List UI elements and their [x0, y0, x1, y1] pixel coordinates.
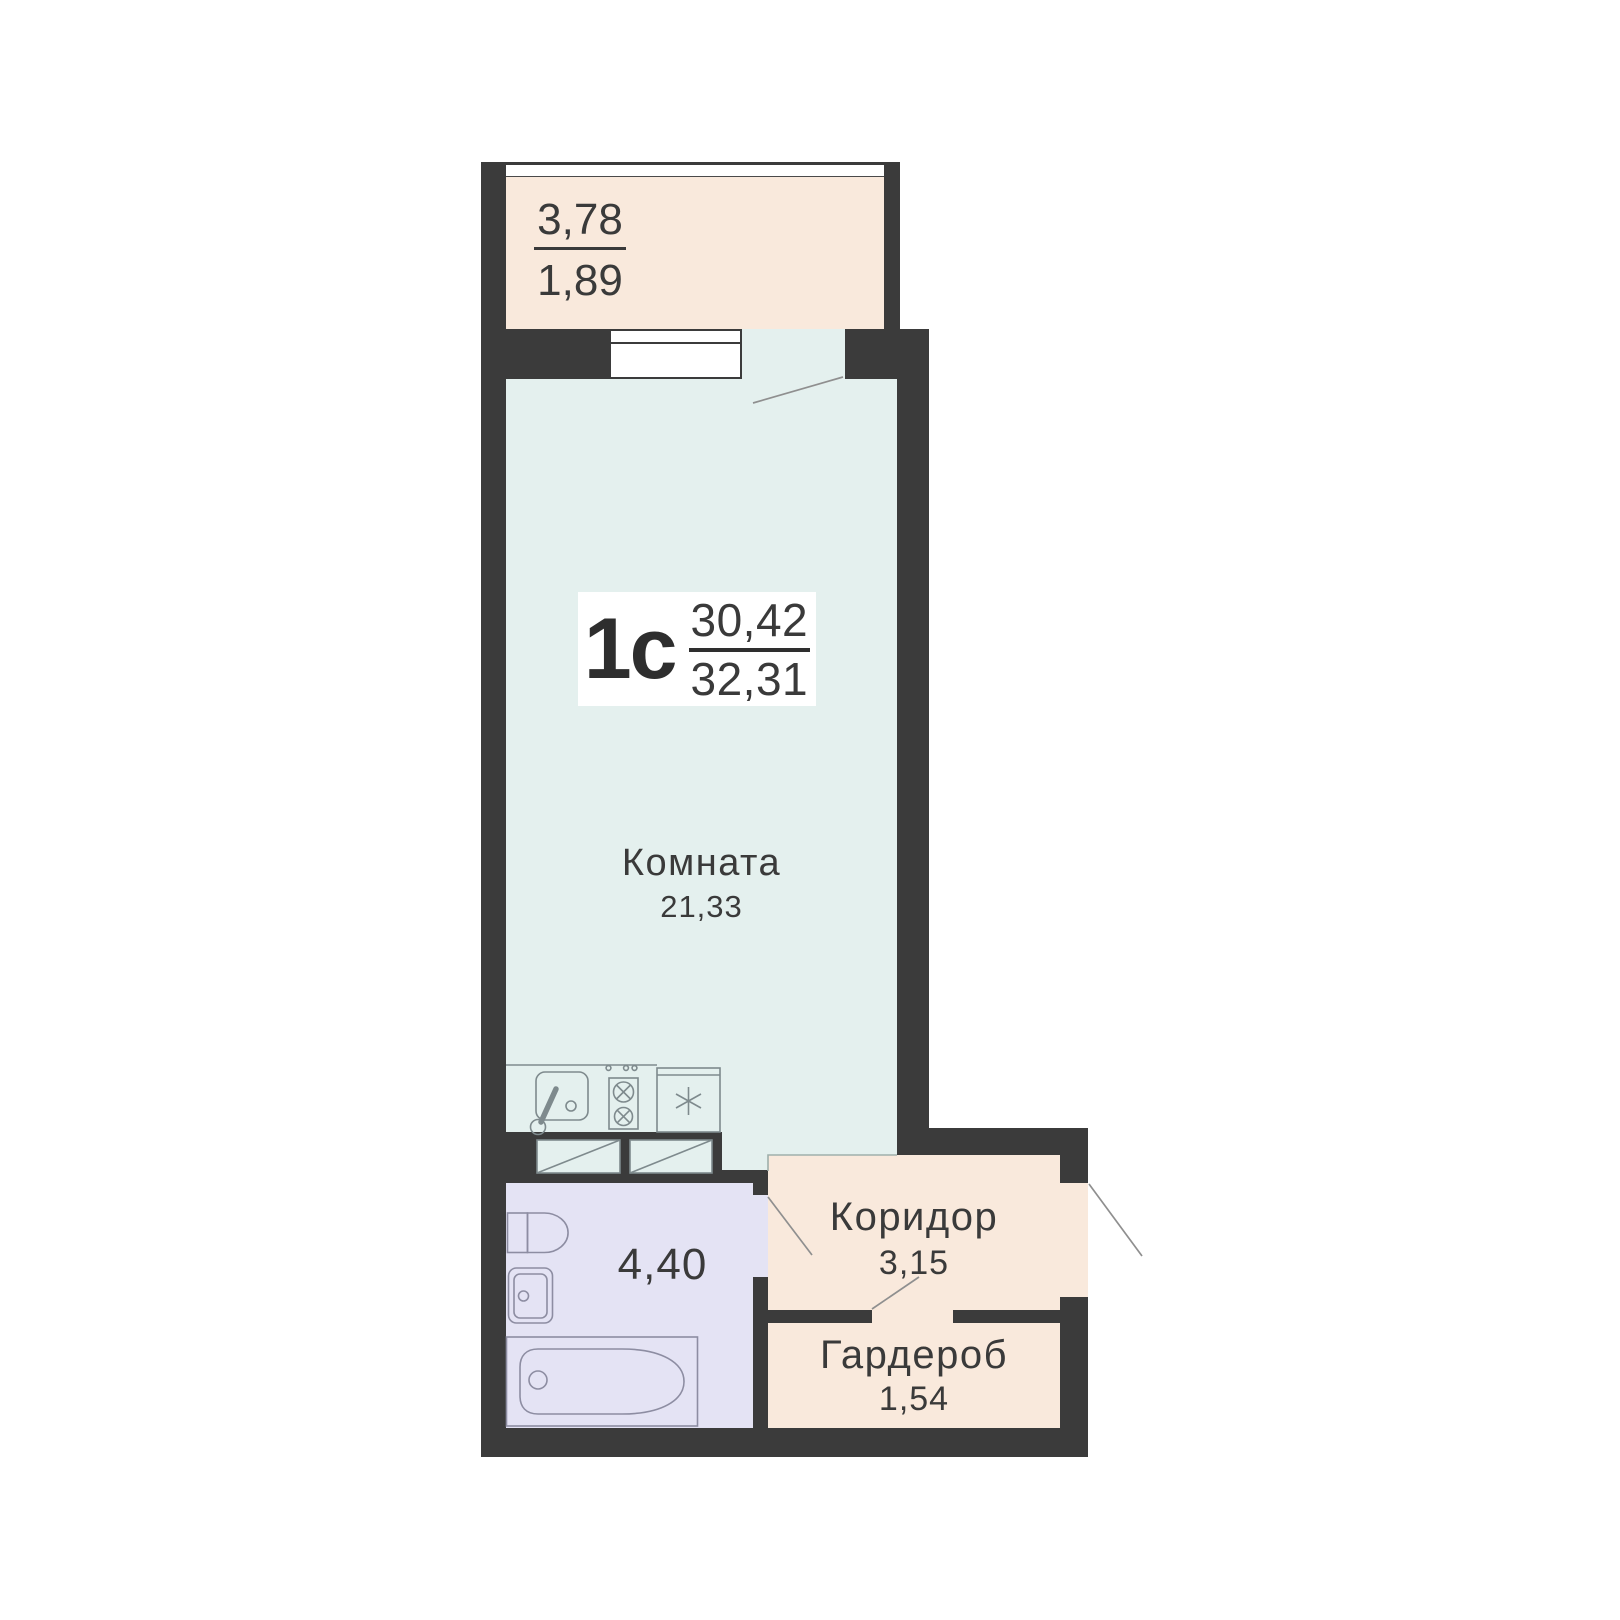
balcony-area-reduced: 1,89: [524, 257, 636, 305]
living-room-label: Комната 21,33: [506, 843, 897, 924]
corridor-area: 3,15: [768, 1245, 1060, 1282]
floor-plan: 3,78 1,89 1с 30,42 32,31 Комната 21,33 4…: [0, 0, 1620, 1620]
unit-total-area: 32,31: [689, 652, 811, 702]
closet-icon: [537, 1140, 712, 1173]
balcony-area-label: 3,78 1,89: [524, 196, 636, 304]
room-corridor-boundary-line: [768, 1155, 897, 1171]
unit-info-box: 1с 30,42 32,31: [578, 592, 816, 706]
toilet-icon: [508, 1213, 569, 1253]
kitchen-sink-icon: [531, 1072, 589, 1135]
unit-living-area: 30,42: [689, 597, 811, 652]
corridor-label: Коридор 3,15: [768, 1196, 1060, 1282]
wardrobe-label: Гардероб 1,54: [768, 1334, 1060, 1418]
living-room-name: Комната: [506, 843, 897, 884]
unit-area-fraction: 30,42 32,31: [689, 597, 811, 702]
corridor-name: Коридор: [768, 1196, 1060, 1239]
wardrobe-name: Гардероб: [768, 1334, 1060, 1377]
washbasin-icon: [509, 1268, 553, 1323]
entrance-door-swing: [1089, 1184, 1142, 1256]
balcony-area-full: 3,78: [534, 196, 626, 250]
stove-icon: [606, 1066, 638, 1129]
fridge-icon: [657, 1068, 720, 1132]
living-room-area: 21,33: [506, 890, 897, 923]
unit-type-label: 1с: [584, 606, 676, 692]
balcony-door-swing: [753, 377, 843, 403]
wardrobe-area: 1,54: [768, 1381, 1060, 1418]
bathtub-icon: [507, 1337, 698, 1426]
bathroom-area-label: 4,40: [585, 1241, 740, 1289]
